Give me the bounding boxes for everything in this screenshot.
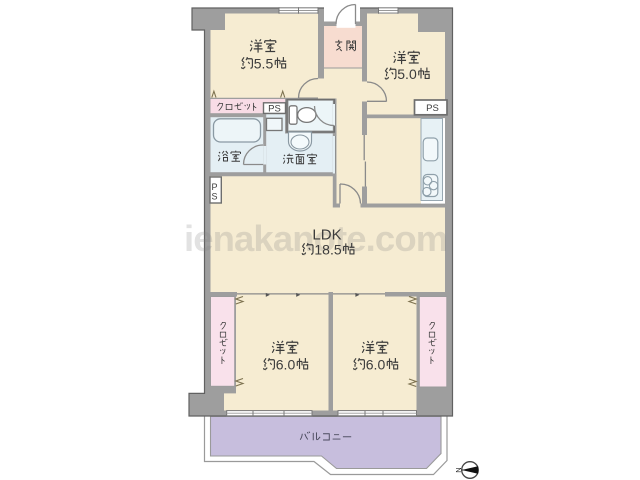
svg-text:LDK: LDK xyxy=(312,227,341,244)
svg-text:S: S xyxy=(211,191,217,201)
svg-text:PS: PS xyxy=(426,103,439,114)
svg-text:5.0: 5.0 xyxy=(397,66,417,82)
svg-text:6.0: 6.0 xyxy=(276,357,296,373)
svg-text:N: N xyxy=(454,467,463,472)
svg-text:18.5: 18.5 xyxy=(314,242,341,258)
svg-text:PS: PS xyxy=(268,103,281,114)
svg-text:6.0: 6.0 xyxy=(366,357,386,373)
svg-text:5.5: 5.5 xyxy=(254,56,274,72)
svg-text:P: P xyxy=(211,182,217,192)
